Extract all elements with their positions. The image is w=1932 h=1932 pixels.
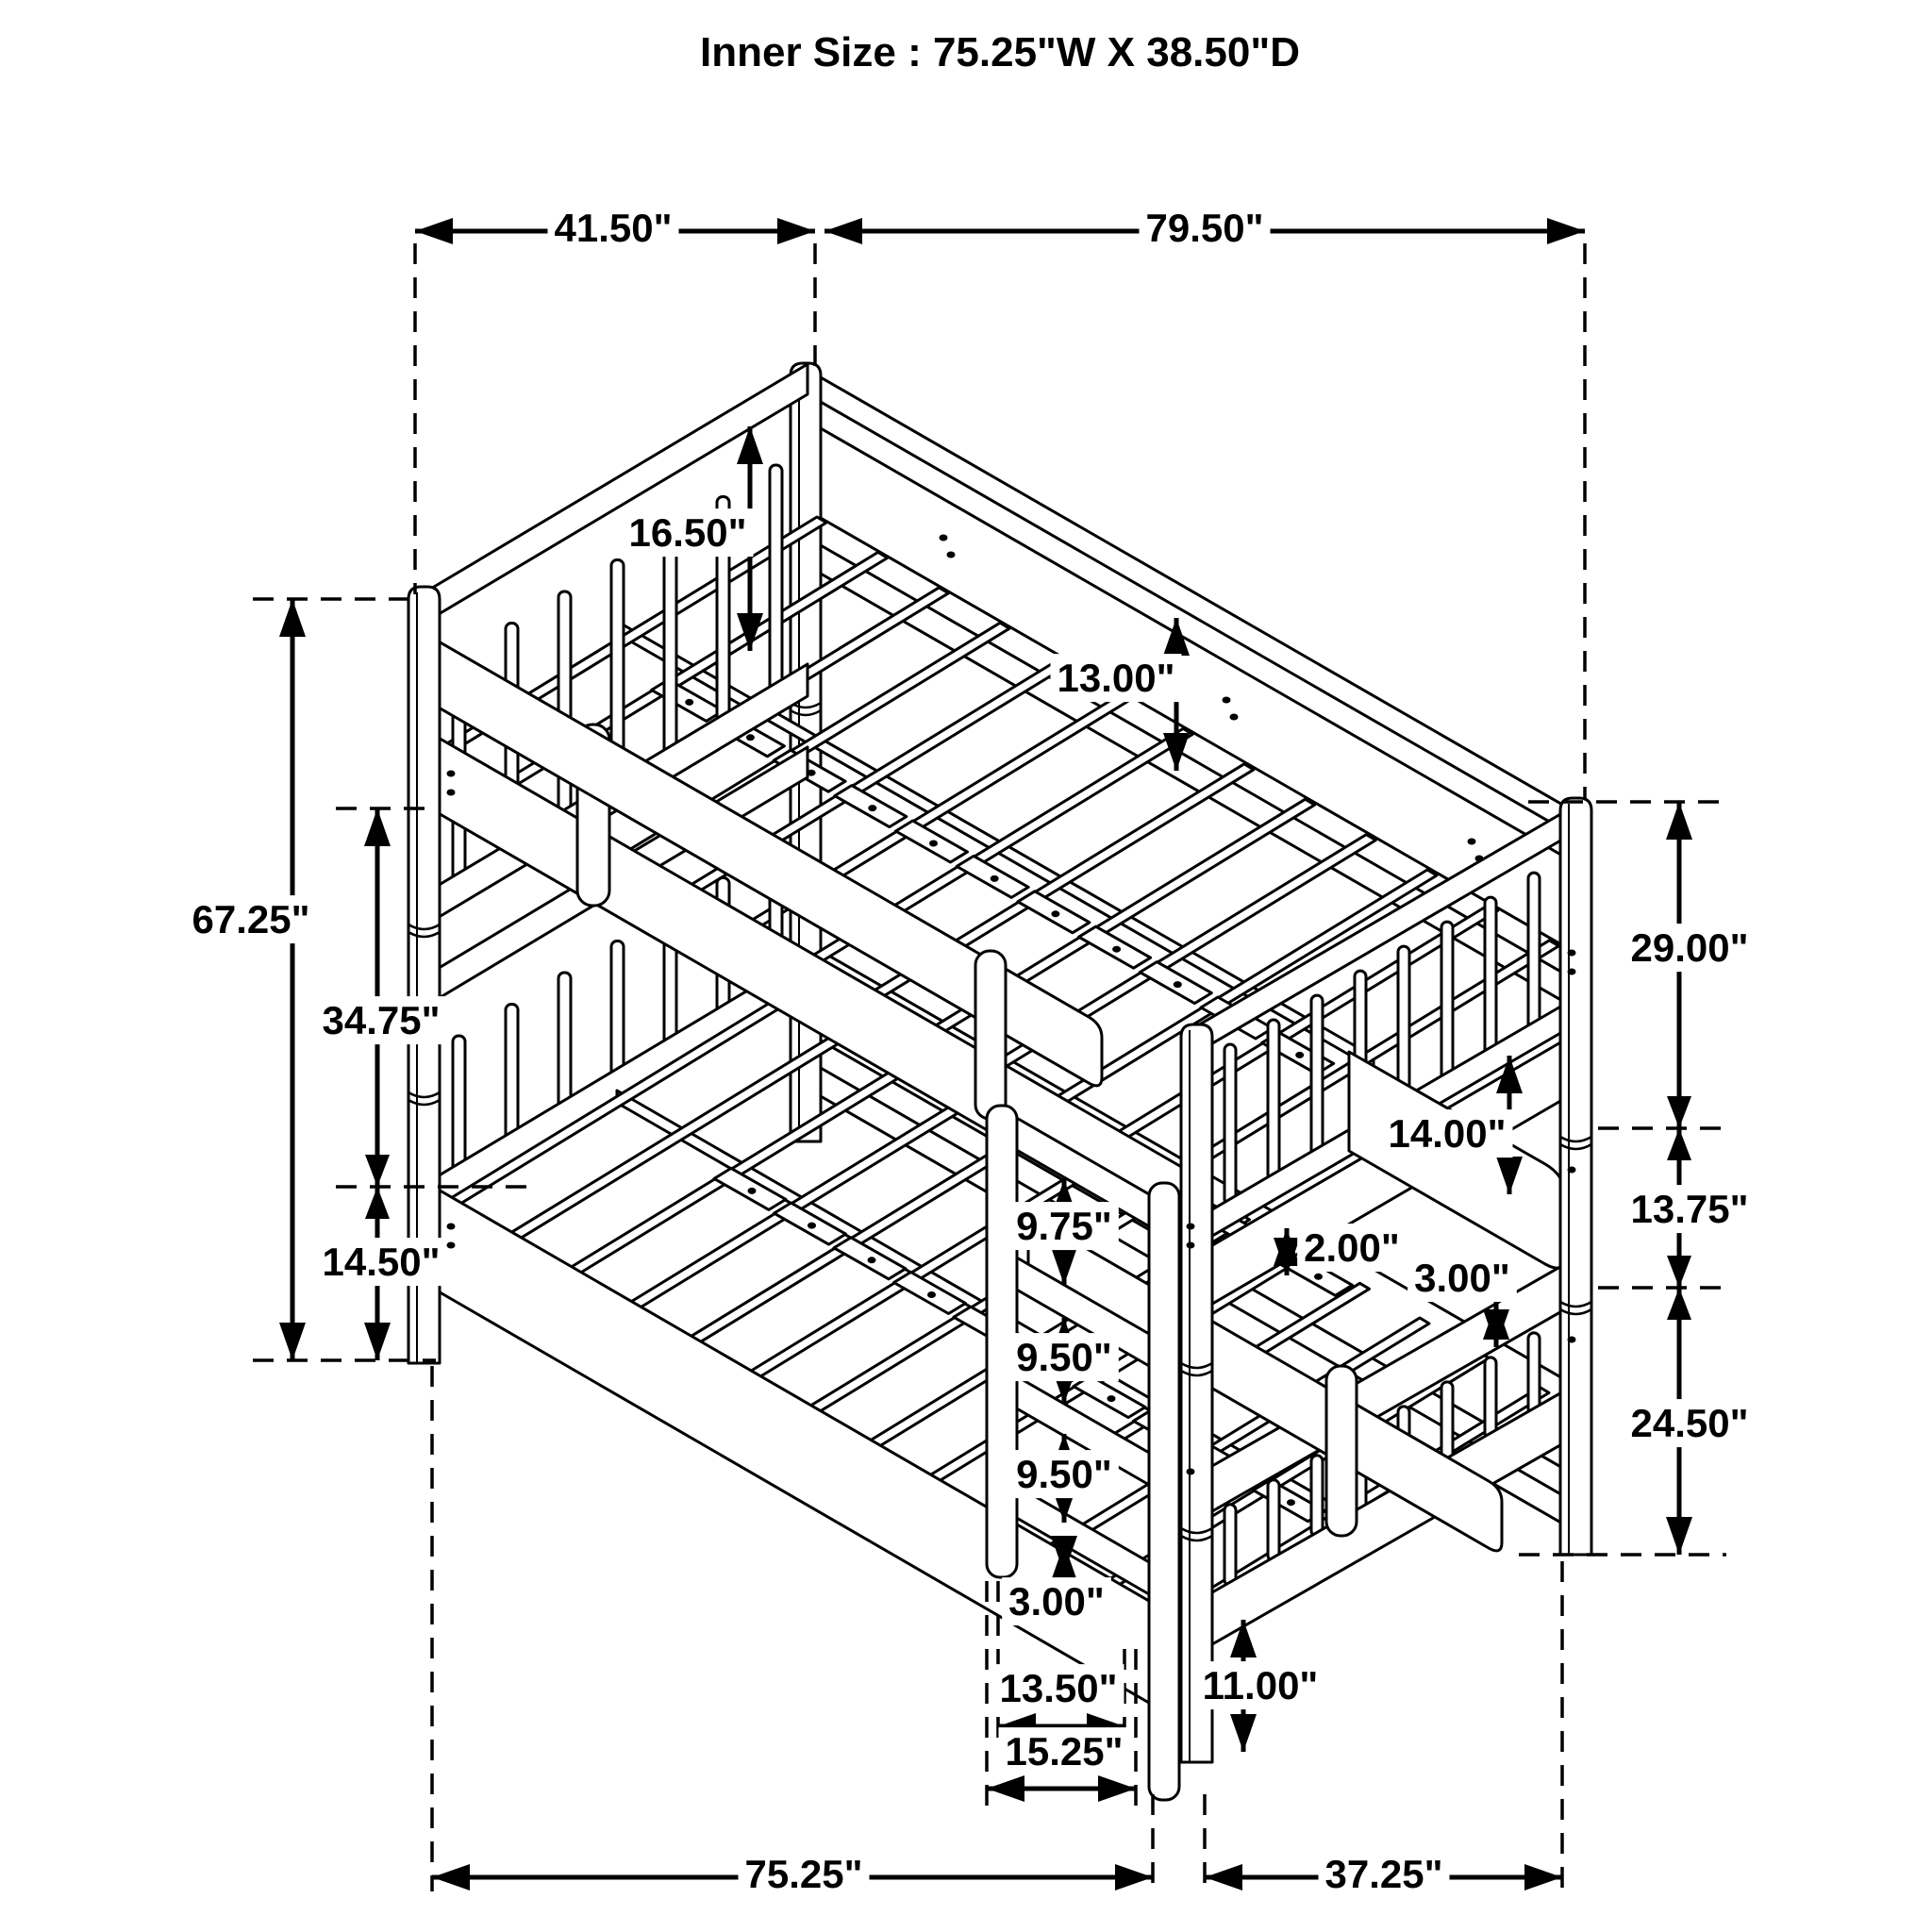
screw-hole bbox=[1187, 1224, 1195, 1230]
diagram-page: Inner Size : 75.25"W X 38.50"D 41.50"79.… bbox=[0, 0, 1932, 1932]
screw-hole bbox=[447, 1224, 456, 1230]
screw-hole bbox=[447, 771, 456, 777]
dimension-label: 14.00" bbox=[1388, 1111, 1506, 1156]
screw-hole bbox=[868, 1257, 876, 1263]
dimension-label: 11.00" bbox=[1203, 1663, 1319, 1707]
screw-hole bbox=[1314, 1274, 1323, 1280]
lower-footboard-slat bbox=[1441, 1382, 1453, 1463]
dimension-label: 16.50" bbox=[628, 510, 746, 555]
screw-hole bbox=[947, 552, 956, 558]
guard-rail-support bbox=[975, 951, 1006, 1119]
dimension-label: 15.25" bbox=[1005, 1729, 1123, 1774]
dimension-label: 13.50" bbox=[999, 1666, 1117, 1710]
screw-hole bbox=[1187, 1242, 1195, 1249]
screw-hole bbox=[1568, 950, 1576, 957]
dimension-label: 75.25" bbox=[744, 1852, 862, 1896]
dimension-label: 34.75" bbox=[322, 998, 440, 1042]
screw-hole bbox=[1230, 714, 1239, 721]
screw-hole bbox=[447, 790, 456, 796]
dimension-label: 14.50" bbox=[322, 1240, 440, 1284]
dimension-label: 29.00" bbox=[1630, 925, 1748, 970]
screw-hole bbox=[927, 1291, 936, 1298]
screw-hole bbox=[940, 535, 948, 541]
lower-footboard-slat bbox=[1485, 1357, 1496, 1439]
dimension-label: 24.50" bbox=[1630, 1401, 1748, 1445]
screw-hole bbox=[868, 805, 876, 811]
screw-hole bbox=[748, 1188, 757, 1194]
dimension-label: 37.25" bbox=[1324, 1852, 1442, 1896]
footboard-slat bbox=[1485, 897, 1496, 1058]
lower-footboard-slat bbox=[1311, 1456, 1323, 1537]
screw-hole bbox=[1187, 1469, 1195, 1475]
footboard-slat bbox=[1268, 1020, 1279, 1180]
screw-hole bbox=[746, 734, 755, 741]
screw-hole bbox=[1568, 1167, 1576, 1174]
screw-hole bbox=[447, 1242, 456, 1249]
screw-hole bbox=[1295, 1052, 1304, 1058]
screw-hole bbox=[685, 699, 693, 706]
bunk-bed-dimension-diagram: Inner Size : 75.25"W X 38.50"D 41.50"79.… bbox=[0, 0, 1932, 1932]
screw-hole bbox=[991, 875, 999, 882]
dimension-label: 79.50" bbox=[1145, 206, 1263, 250]
lower-footboard-slat bbox=[1528, 1333, 1540, 1414]
screw-hole bbox=[1287, 1499, 1295, 1506]
dimension-label: 3.00" bbox=[1414, 1256, 1510, 1300]
dimension-label: 13.75" bbox=[1630, 1187, 1748, 1231]
dimension-label: 41.50" bbox=[554, 206, 672, 250]
screw-hole bbox=[1223, 697, 1231, 704]
ladder-right-rail bbox=[1149, 1183, 1179, 1800]
screw-hole bbox=[1108, 1395, 1116, 1402]
footboard-slat bbox=[1311, 995, 1323, 1156]
dimension-label: 2.00" bbox=[1304, 1225, 1400, 1270]
post-foot-near bbox=[1181, 1024, 1212, 1762]
lower-footboard-slat bbox=[1268, 1480, 1279, 1561]
footboard-slat bbox=[1224, 1044, 1236, 1205]
dimension-label: 67.25" bbox=[192, 897, 309, 941]
screw-hole bbox=[929, 841, 938, 847]
diagram-title: Inner Size : 75.25"W X 38.50"D bbox=[700, 29, 1300, 75]
dimension-label: 9.75" bbox=[1016, 1204, 1112, 1248]
screw-hole bbox=[1568, 969, 1576, 975]
dimension-label: 9.50" bbox=[1016, 1452, 1112, 1496]
headboard-slat bbox=[770, 465, 782, 705]
headboard-slat bbox=[664, 528, 676, 768]
screw-hole bbox=[1174, 981, 1182, 988]
dimension-label: 13.00" bbox=[1057, 656, 1174, 700]
lower-footboard-slat bbox=[1224, 1505, 1236, 1586]
screw-hole bbox=[1051, 910, 1059, 917]
dim-ladder-outer-width: 15.25" bbox=[987, 1727, 1136, 1802]
screw-hole bbox=[808, 1223, 816, 1229]
lower-guard-rail-support bbox=[1326, 1366, 1357, 1536]
footboard-slat bbox=[1441, 922, 1453, 1082]
dimension-label: 3.00" bbox=[1008, 1579, 1105, 1624]
screw-hole bbox=[1568, 1337, 1576, 1343]
dimension-label: 9.50" bbox=[1016, 1335, 1112, 1379]
screw-hole bbox=[1468, 839, 1476, 845]
post-foot-far bbox=[1560, 798, 1591, 1555]
screw-hole bbox=[1112, 946, 1121, 953]
footboard-slat bbox=[1528, 873, 1540, 1033]
